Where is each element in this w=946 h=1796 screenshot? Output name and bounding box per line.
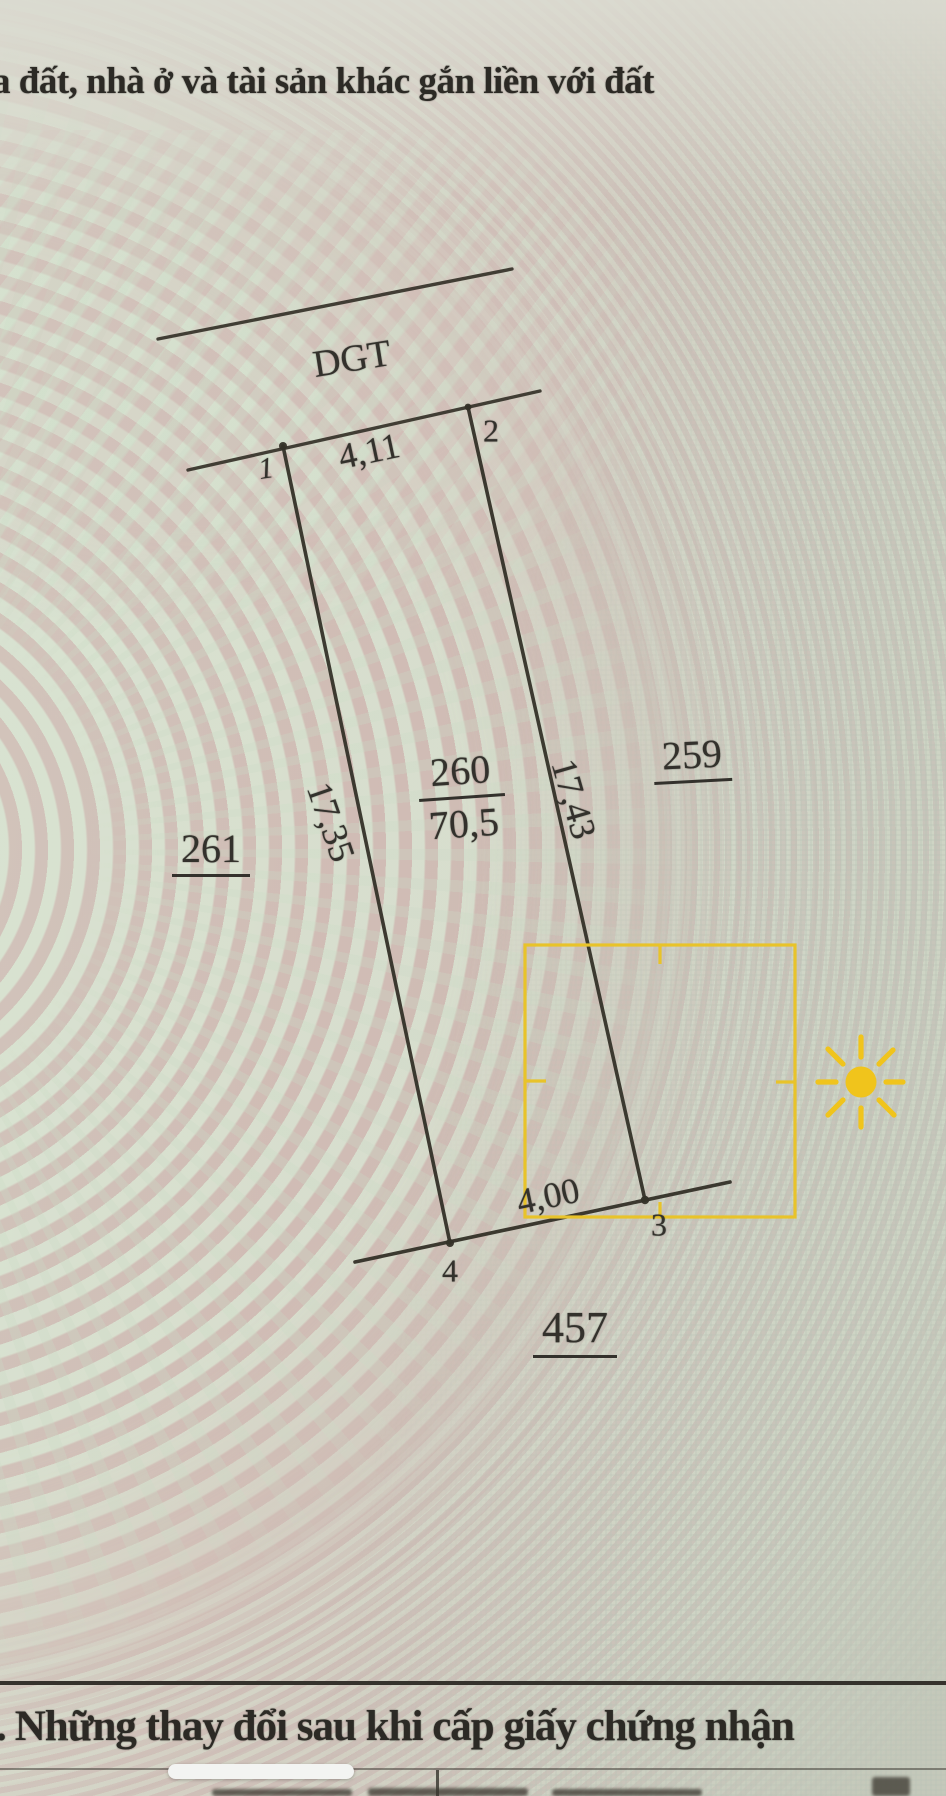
sun-core [846, 1067, 877, 1098]
cropped-text-smudge [368, 1788, 528, 1796]
parcel-number: 260 [416, 744, 505, 802]
corner-label-3: 3 [651, 1207, 667, 1244]
sun-icon [818, 1037, 903, 1127]
bottom-section-title: .Những thay đổi sau khi cấp giấy chứng n… [0, 1702, 794, 1751]
road-line-upper [158, 269, 512, 339]
corner-dot-1 [279, 442, 287, 450]
table-row-line [0, 1768, 946, 1770]
corner-dot-2 [465, 404, 472, 411]
adjacent-parcel-right: 259 [652, 729, 733, 785]
corner-dot-4 [446, 1239, 454, 1247]
parcel-number-area: 260 70,5 [416, 744, 509, 850]
bottom-section-title-text: Những thay đổi sau khi cấp giấy chứng nh… [15, 1703, 794, 1750]
cropped-text-smudge [552, 1789, 702, 1796]
certificate-photo: a đất, nhà ở và tài sản khác gắn liền vớ… [0, 0, 946, 1796]
corner-label-4: 4 [442, 1253, 458, 1290]
adjacent-parcel-bottom: 457 [533, 1302, 617, 1358]
cropped-text-smudge [872, 1777, 910, 1796]
cadastral-diagram [0, 0, 946, 1796]
corner-dot-3 [641, 1196, 649, 1204]
section-divider-line [0, 1681, 946, 1685]
parcel-area: 70,5 [419, 797, 508, 850]
cropped-text-smudge [212, 1789, 352, 1796]
home-indicator-bar[interactable] [168, 1764, 354, 1779]
corner-label-2: 2 [483, 413, 499, 450]
cropped-numbering-fragment: . [0, 1703, 6, 1750]
adjacent-parcel-left: 261 [172, 825, 250, 877]
